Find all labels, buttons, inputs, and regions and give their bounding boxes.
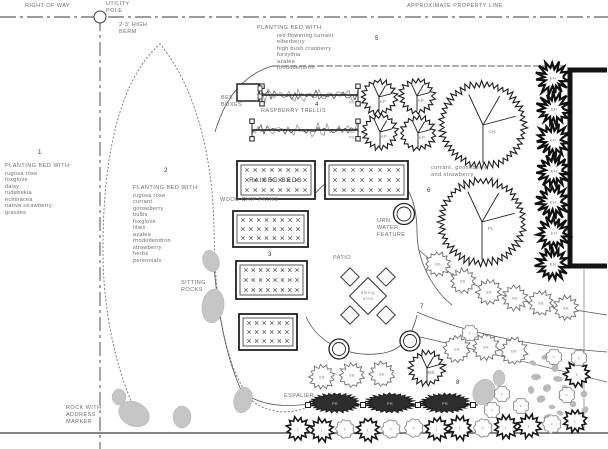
dining-area-label: area bbox=[363, 296, 374, 301]
trellis-post-cap bbox=[250, 119, 254, 123]
area-number-6: 6 bbox=[427, 187, 431, 194]
raspberry-trellis-label: RASPBERRY TRELLIS bbox=[261, 108, 326, 115]
approximate-property-line-label: APPROXIMATE PROPERTY LINE bbox=[407, 3, 503, 10]
raised-bed bbox=[239, 314, 297, 350]
espalier-post bbox=[416, 403, 421, 408]
plant-code-label: L bbox=[576, 373, 578, 377]
dining-area-label: dining bbox=[361, 290, 375, 295]
plant-code-label: RB bbox=[349, 101, 355, 105]
area-number-2: 2 bbox=[164, 167, 168, 174]
rock bbox=[493, 370, 505, 386]
plant-item: grasses bbox=[5, 210, 71, 217]
area-number-4: 4 bbox=[315, 101, 319, 108]
utility-pole-label: UTILITY POLE bbox=[106, 1, 130, 15]
plant-code-label: F bbox=[390, 428, 393, 432]
plant-code-label: L bbox=[505, 426, 507, 430]
planter-pot bbox=[329, 339, 349, 359]
rock-with-address-marker-label: ROCK WITH ADDRESS MARKER bbox=[66, 405, 102, 425]
plant-code-label: EH bbox=[551, 107, 557, 112]
plant-code-label: F bbox=[551, 423, 554, 427]
plant-code-label: AP bbox=[380, 99, 386, 104]
raised-beds-label: RAISED BEDS bbox=[249, 178, 303, 184]
planting-bed-5-title: PLANTING BED WITH: bbox=[257, 25, 333, 32]
plant-code-label: F bbox=[491, 409, 494, 413]
bee-boxes-label: BEE BOXES bbox=[221, 95, 242, 109]
espalier-post bbox=[361, 403, 366, 408]
raised-bed bbox=[325, 161, 408, 199]
plant-code-label: F bbox=[482, 427, 485, 431]
bee-box-detail bbox=[258, 86, 262, 91]
plant-code-label: RB bbox=[349, 136, 355, 140]
building-outline bbox=[570, 70, 607, 266]
trellis-post-cap bbox=[356, 102, 360, 106]
planting-bed-1-plants: rugosa rosefoxglovedaisyrudebekiaechinac… bbox=[5, 171, 71, 217]
trellis-post-cap bbox=[356, 137, 360, 141]
plant-code-label: BB bbox=[349, 374, 355, 378]
trellis-post-cap bbox=[356, 119, 360, 123]
plant-code-label: L bbox=[367, 429, 369, 433]
plant-code-label: BB bbox=[460, 280, 466, 284]
espalier-post bbox=[471, 403, 476, 408]
plant-code-label: F bbox=[413, 427, 416, 431]
plant-code-label: L bbox=[528, 425, 530, 429]
raised-bed bbox=[236, 261, 307, 299]
planting-bed-2-list: PLANTING BED WITH: rugosa rosecurrantgoo… bbox=[133, 185, 199, 264]
plant-code-label: BB bbox=[512, 297, 518, 301]
plant-item: perennials bbox=[133, 258, 199, 265]
plant-code-label: F bbox=[578, 357, 581, 361]
rock bbox=[173, 406, 191, 428]
gravel-stone bbox=[556, 409, 564, 416]
plant-code-label: EH bbox=[550, 200, 556, 205]
area-number-8: 8 bbox=[456, 379, 460, 386]
landscape-plan: dining area RAISED BEDSRBRBPRPRPRAPAPAPA… bbox=[0, 0, 608, 449]
currant-note-label: currant, gooseberry and strawberry bbox=[431, 165, 487, 179]
plant-code-label: BB bbox=[483, 346, 489, 350]
plant-code-label: MB bbox=[427, 370, 434, 375]
rock bbox=[200, 248, 223, 274]
wood-chip-paths-label: WOOD CHIP PATHS bbox=[220, 197, 278, 204]
plant-code-label: F bbox=[566, 394, 569, 398]
right-of-way-label: RIGHT OF WAY bbox=[25, 3, 70, 10]
plant-code-label: EH bbox=[551, 231, 557, 236]
plant-code-label: CH bbox=[489, 129, 496, 134]
patio-lower-curve bbox=[306, 315, 417, 354]
plant-code-label: BB bbox=[435, 263, 441, 267]
area-number-7: 7 bbox=[420, 303, 424, 310]
planting-bed-1-title: PLANTING BED WITH: bbox=[5, 163, 71, 170]
trellis-post-cap bbox=[260, 102, 264, 106]
plant-code-label: L bbox=[297, 428, 299, 432]
area-number-3: 3 bbox=[268, 251, 272, 258]
gravel-stone bbox=[541, 383, 552, 394]
trellis-post-cap bbox=[250, 137, 254, 141]
planting-bed-5-list: PLANTING BED WITH: red flowering currant… bbox=[257, 25, 333, 72]
espalier-label: ESPALIER bbox=[284, 393, 314, 400]
gravel-stone bbox=[549, 405, 556, 410]
plant-code-label: EH bbox=[550, 138, 556, 143]
plant-code-label: F bbox=[344, 428, 347, 432]
plant-code-label: BB bbox=[319, 376, 325, 380]
high-berm-label: 2-3' HIGH BERM bbox=[119, 22, 147, 36]
urn-water-feature-label: URN WATER FEATURE bbox=[377, 218, 405, 238]
trellis-post-cap bbox=[356, 84, 360, 88]
plant-code-label: BB bbox=[538, 302, 544, 306]
plant-code-label: PR bbox=[332, 402, 338, 406]
plant-code-label: AP bbox=[419, 135, 425, 140]
plant-code-label: EH bbox=[550, 76, 556, 81]
plant-code-label: L bbox=[436, 428, 438, 432]
plant-code-label: EH bbox=[551, 169, 557, 174]
gravel-stone bbox=[529, 359, 538, 367]
sitting-rocks-label: SITTING ROCKS bbox=[181, 280, 206, 294]
plant-code-label: PR bbox=[387, 402, 393, 406]
plant-code-label: BB bbox=[454, 348, 460, 352]
plant-code-label: BB bbox=[379, 373, 385, 377]
plant-code-label: BB bbox=[511, 350, 517, 354]
utility-pole-symbol bbox=[94, 11, 106, 23]
planting-bed-5-plants: red flowering currantelberberryhigh bush… bbox=[257, 33, 333, 72]
plant-code-label: F bbox=[520, 405, 523, 409]
gravel-stone bbox=[531, 374, 541, 380]
plant-code-label: L bbox=[459, 427, 461, 431]
espalier-post bbox=[306, 403, 311, 408]
plant-code-label: EH bbox=[550, 262, 556, 267]
plant-code-label: AP bbox=[418, 98, 424, 103]
planting-bed-1-list: PLANTING BED WITH: rugosa rosefoxgloveda… bbox=[5, 163, 71, 216]
plant-code-label: L bbox=[321, 429, 323, 433]
plant-item: rhododendron bbox=[277, 65, 333, 72]
plant-code-label: BB bbox=[563, 307, 569, 311]
plant-code-label: AP bbox=[381, 134, 387, 139]
planting-bed-2-title: PLANTING BED WITH: bbox=[133, 185, 199, 192]
planter-pot bbox=[400, 331, 420, 351]
gravel-stone bbox=[553, 376, 563, 383]
planting-bed-2-plants: rugosa rosecurrantgooseberrybulbsfoxglov… bbox=[133, 193, 199, 265]
plant-code-label: F bbox=[501, 393, 504, 397]
gravel-stone bbox=[536, 394, 546, 403]
gravel-stone bbox=[580, 390, 588, 398]
plant-code-label: F bbox=[553, 356, 556, 360]
plant-code-label: F bbox=[469, 332, 472, 336]
area-number-1: 1 bbox=[38, 149, 42, 156]
rock bbox=[231, 385, 255, 415]
plant-code-label: PL bbox=[488, 226, 494, 231]
bee-box-detail bbox=[258, 94, 262, 99]
area-number-5: 5 bbox=[375, 35, 379, 42]
patio-label: PATIO bbox=[333, 255, 351, 262]
gravel-stone bbox=[527, 386, 535, 395]
plant-code-label: BB bbox=[486, 291, 492, 295]
plant-code-label: L bbox=[574, 420, 576, 424]
raised-bed bbox=[233, 211, 308, 247]
plant-code-label: PR bbox=[442, 402, 448, 406]
